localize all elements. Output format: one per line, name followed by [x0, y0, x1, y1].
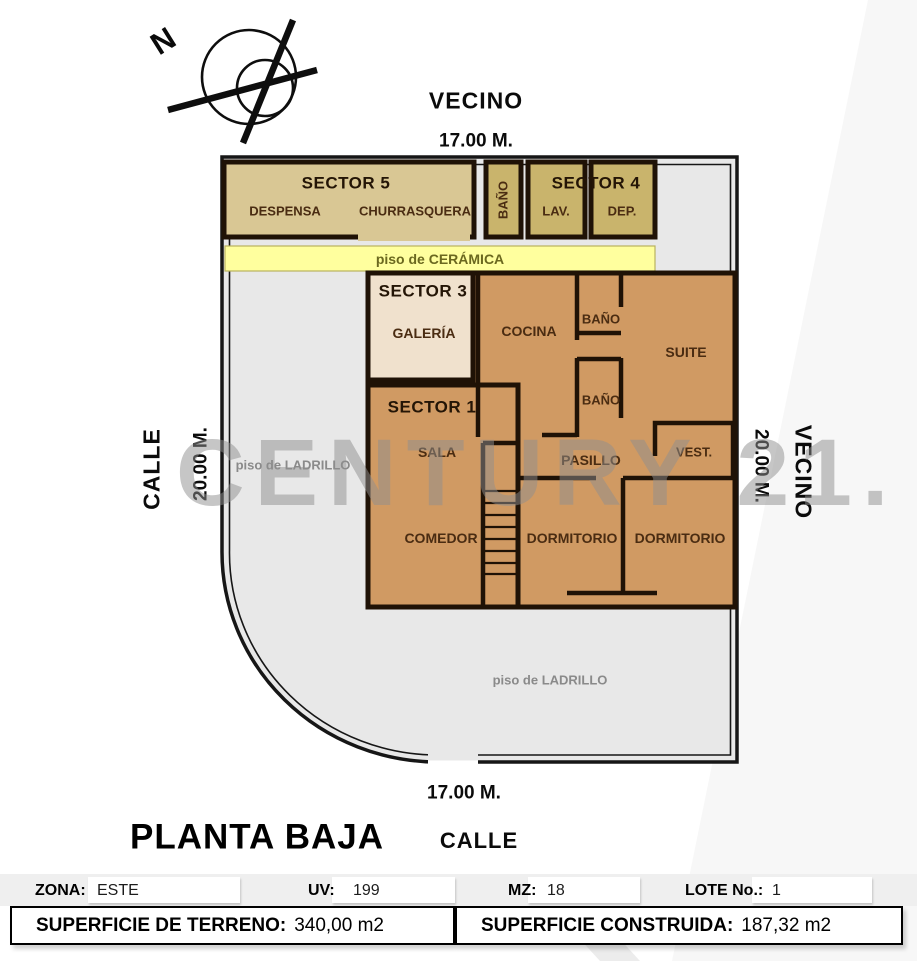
mz-label: MZ:: [508, 882, 536, 900]
boundary-left-street: CALLE: [141, 428, 164, 510]
floor-ceramica-label: piso de CERÁMICA: [376, 252, 504, 266]
uv-label: UV:: [308, 882, 335, 900]
compass-icon: [168, 20, 317, 143]
room-comedor: COMEDOR: [404, 531, 477, 545]
sector3-title: SECTOR 3: [379, 283, 468, 300]
superficie-construida-value: 187,32 m2: [741, 915, 831, 937]
room-dep: DEP.: [608, 205, 637, 218]
floor-ladrillo-bottom-label: piso de LADRILLO: [493, 674, 608, 687]
dimension-bottom: 17.00 M.: [427, 784, 501, 803]
uv-value: 199: [353, 882, 380, 900]
room-sala: SALA: [418, 445, 456, 459]
lot-entrance-gap: [428, 750, 478, 761]
room-lav: LAV.: [542, 205, 569, 218]
room-vest: VEST.: [676, 446, 712, 459]
boundary-top-neighbor: VECINO: [429, 90, 523, 113]
sector5-title: SECTOR 5: [302, 175, 391, 192]
boundary-bottom-street: CALLE: [440, 830, 518, 852]
room-dormitorio-1: DORMITORIO: [527, 531, 618, 545]
room-dormitorio-2: DORMITORIO: [635, 531, 726, 545]
room-despensa: DESPENSA: [249, 205, 321, 218]
floor-ladrillo-left-label: piso de LADRILLO: [236, 459, 351, 472]
superficie-construida-label: SUPERFICIE CONSTRUIDA:: [481, 915, 733, 937]
plan-title: PLANTA BAJA: [130, 820, 384, 855]
superficie-terreno-label: SUPERFICIE DE TERRENO:: [36, 915, 286, 937]
zona-label: ZONA:: [35, 882, 86, 900]
floor-plan-page: N VECINO 17.00 M. CALLE 20.00 M. 20.00 M…: [0, 0, 917, 961]
dimension-left: 20.00 M.: [192, 427, 211, 501]
mz-value: 18: [547, 882, 565, 900]
sector5-door-gap: [358, 233, 470, 241]
room-bano-1: BAÑO: [582, 313, 620, 326]
sector4-title: SECTOR 4: [552, 175, 641, 192]
lote-value-box: [752, 877, 872, 903]
uv-value-box: [332, 877, 455, 903]
superficie-construida-box: SUPERFICIE CONSTRUIDA: 187,32 m2: [455, 906, 903, 945]
room-bano-2: BAÑO: [582, 394, 620, 407]
lote-label: LOTE No.:: [685, 882, 763, 900]
boundary-right-neighbor: VECINO: [792, 425, 815, 519]
room-galeria: GALERÍA: [393, 326, 456, 340]
superficie-terreno-value: 340,00 m2: [294, 915, 384, 937]
mz-value-box: [528, 877, 640, 903]
room-cocina: COCINA: [501, 324, 556, 338]
zona-value: ESTE: [97, 882, 139, 900]
room-pasillo: PASILLO: [561, 453, 621, 467]
dimension-right: 20.00 M.: [752, 429, 771, 503]
sector1-title: SECTOR 1: [388, 399, 477, 416]
room-churrasquera: CHURRASQUERA: [359, 205, 471, 218]
lot-entrance-gap-outer: [428, 761, 478, 767]
room-suite: SUITE: [665, 345, 706, 359]
lote-value: 1: [772, 882, 781, 900]
superficie-terreno-box: SUPERFICIE DE TERRENO: 340,00 m2: [10, 906, 455, 945]
dimension-top: 17.00 M.: [439, 132, 513, 151]
room-bano-strip: BAÑO: [497, 181, 510, 219]
